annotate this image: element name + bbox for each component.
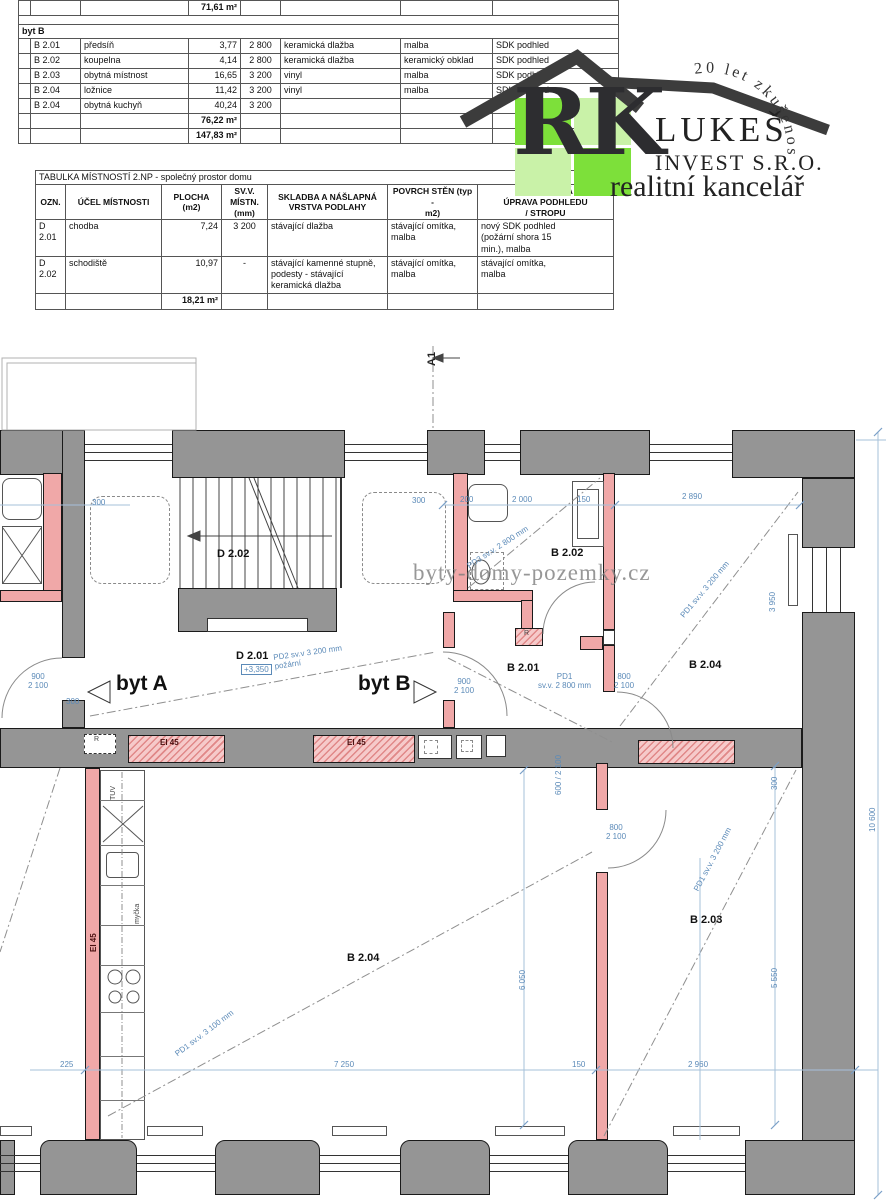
table-cell (81, 129, 189, 144)
plan-label: PD1 sv.v. 3 100 mm (173, 1008, 235, 1058)
table-cell: 3 200 (241, 69, 281, 84)
stairs-icon (180, 478, 336, 588)
plan-label: D 2.02 (217, 548, 249, 561)
plan-label: R (94, 736, 99, 744)
plan-label: byt B (358, 672, 411, 696)
table-header-cell: OZN. (36, 185, 66, 220)
kitchen-oven (106, 852, 139, 878)
wall-bath-a-east (43, 473, 62, 592)
dimension-ticks (81, 428, 882, 1199)
kitchen-counter (100, 770, 145, 1140)
plan-label: 800 2 100 (606, 823, 626, 841)
table-cell: koupelna (81, 54, 189, 69)
table-section-label: byt B (19, 25, 619, 39)
table-cell: vinyl (281, 84, 401, 99)
plan-label: A1 (426, 352, 439, 366)
table-cell (19, 129, 31, 144)
table-cell: D 2.02 (36, 256, 66, 293)
wall-bytb-jamb-n (443, 612, 455, 648)
plan-label: B 2.01 (507, 662, 539, 675)
table-cell (493, 1, 619, 16)
table-cell: 4,14 (189, 54, 241, 69)
table-cell (241, 1, 281, 16)
plan-label: PD1 sv.v. 3 200 mm (678, 559, 731, 619)
wall-bottom-1 (40, 1140, 137, 1195)
table-header-cell: SKLADBA A NÁŠLAPNÁ VRSTVA PODLAHY (268, 185, 388, 220)
table-cell: obytná místnost (81, 69, 189, 84)
table-row: D 2.02schodiště10,97-stávající kamenné s… (36, 256, 614, 293)
table-cell (31, 1, 81, 16)
table-cell: 3,77 (189, 39, 241, 54)
wall-top-4 (520, 430, 650, 475)
table-cell: ložnice (81, 84, 189, 99)
table-row: 71,61 m² (19, 1, 619, 16)
table-cell: 40,24 (189, 99, 241, 114)
plan-label: 150 (572, 1060, 585, 1069)
table-cell: 71,61 m² (189, 1, 241, 16)
plan-label: 300 (66, 697, 79, 706)
plan-label: 150 (577, 495, 590, 504)
terrace-outline (2, 358, 196, 430)
table-cell (241, 129, 281, 144)
logo-name: LUKEŠ (655, 110, 788, 150)
table-cell (19, 84, 31, 99)
wall-hall-west (62, 430, 85, 658)
table-cell (19, 99, 31, 114)
table-cell (222, 293, 268, 309)
table-cell: B 2.02 (31, 54, 81, 69)
table-cell: - (222, 256, 268, 293)
table-cell: 2 800 (241, 54, 281, 69)
table-cell: 3 200 (222, 220, 268, 257)
plan-label: B 2.03 (690, 914, 722, 927)
plan-label: EI 45 (160, 738, 179, 747)
agency-logo: 20 let zkušeností RK LUKEŠ INVEST S.R.O.… (455, 38, 886, 230)
plan-label: 600 / 2 100 (554, 755, 563, 795)
plan-label: 3 950 (768, 592, 777, 612)
table-cell: stávající kamenné stupně, podesty - stáv… (268, 256, 388, 293)
plan-label: 2 000 (512, 495, 532, 504)
wall-bottom-2 (215, 1140, 320, 1195)
table-cell (281, 129, 401, 144)
niche-r-box (84, 734, 116, 754)
wall-bottom-4 (568, 1140, 668, 1195)
table-cell (401, 1, 493, 16)
table-header-cell: PLOCHA (m2) (162, 185, 222, 220)
table-cell (388, 293, 478, 309)
table-cell (19, 1, 31, 16)
table-cell: obytná kuchyň (81, 99, 189, 114)
plan-label: B 2.02 (551, 547, 583, 560)
plan-label: 10 600 (868, 808, 877, 832)
radiator-right (788, 534, 798, 606)
wall-top-2 (172, 430, 345, 478)
table-cell: vinyl (281, 69, 401, 84)
table-cell (19, 54, 31, 69)
wall-right-lower (802, 612, 855, 1195)
table-cell: keramická dlažba (281, 39, 401, 54)
plan-label: 800 2 100 (614, 672, 634, 690)
table-cell: stávající dlažba (268, 220, 388, 257)
table-row: 18,21 m² (36, 293, 614, 309)
appliance-icon-2 (461, 740, 473, 752)
table-cell: schodiště (66, 256, 162, 293)
bathtub-b202 (468, 484, 508, 522)
table-cell (281, 1, 401, 16)
table-cell: 7,24 (162, 220, 222, 257)
plan-label: B 2.04 (689, 659, 721, 672)
table-cell: 3 200 (241, 84, 281, 99)
plan-label: 225 (60, 1060, 73, 1069)
table-cell: B 2.03 (31, 69, 81, 84)
table-cell (19, 69, 31, 84)
radiator-bottom-1 (147, 1126, 203, 1136)
appliance-icon-1 (424, 740, 438, 754)
wardrobe-hall (90, 496, 170, 584)
plan-label: 2 890 (682, 492, 702, 501)
table-cell: 3 200 (241, 99, 281, 114)
wall-bottom-0 (0, 1140, 15, 1195)
table-cell: keramická dlažba (281, 54, 401, 69)
radiator-bottom-3 (495, 1126, 565, 1136)
plan-label: 2 960 (688, 1060, 708, 1069)
table-cell (19, 114, 31, 129)
wall-bottom-3 (400, 1140, 490, 1195)
plan-label: 300 (770, 777, 779, 790)
table-cell: 16,65 (189, 69, 241, 84)
wall-top-3 (427, 430, 485, 475)
table-cell (241, 114, 281, 129)
table-cell: 2 800 (241, 39, 281, 54)
wall-divider-upper (596, 763, 608, 810)
bathtub-byt-a (2, 478, 42, 520)
wall-top-5 (732, 430, 855, 478)
plan-label: 900 2 100 (454, 677, 474, 695)
table-cell (268, 293, 388, 309)
plan-label: EI 45 (89, 933, 98, 952)
plan-label: myčka (134, 904, 142, 924)
plan-label: 200 (460, 495, 473, 504)
table-cell: D 2.01 (36, 220, 66, 257)
niche-b202-east (603, 630, 615, 645)
table-cell: 76,22 m² (189, 114, 241, 129)
plan-label: 300 (412, 496, 425, 505)
wall-right-upper (802, 478, 855, 548)
plan-label: 6 050 (518, 970, 527, 990)
plan-label: +3,350 (241, 664, 272, 675)
plan-label: D 2.01 (236, 650, 268, 663)
table-cell (31, 129, 81, 144)
wall-bath-a-south (0, 590, 62, 602)
niche-appliance-3 (486, 735, 506, 757)
logo-rk-monogram: RK (513, 76, 661, 168)
table-header-cell: SV.V. MÍSTN. (mm) (222, 185, 268, 220)
table-cell: 147,83 m² (189, 129, 241, 144)
table-row: byt B (19, 25, 619, 39)
table-cell: B 2.04 (31, 84, 81, 99)
table-cell (19, 39, 31, 54)
radiator-bottom-4 (673, 1126, 740, 1136)
table-header-cell: ÚČEL MÍSTNOSTI (66, 185, 162, 220)
table-cell (31, 114, 81, 129)
plan-label: B 2.04 (347, 952, 379, 965)
wall-kitchen-west (85, 768, 100, 1140)
table-cell (66, 293, 162, 309)
wall-ei45-3 (638, 740, 735, 764)
plan-label: PD1 sv.v. 2 800 mm (538, 672, 591, 690)
niche-under-stairs (207, 618, 308, 632)
plan-label: 900 2 100 (28, 672, 48, 690)
table-cell: B 2.01 (31, 39, 81, 54)
radiator-bottom-0 (0, 1126, 32, 1136)
table-row (19, 16, 619, 25)
shower-byt-a (2, 526, 42, 584)
table-cell: 18,21 m² (162, 293, 222, 309)
plan-label: PD2 sv.v 3 200 mm požární (273, 643, 344, 671)
plan-label: TUV (110, 786, 118, 800)
table-cell: chodba (66, 220, 162, 257)
plan-label: EI 45 (347, 738, 366, 747)
table-cell: B 2.04 (31, 99, 81, 114)
wall-b202-east-1 (603, 473, 615, 630)
wall-divider-lower (596, 872, 608, 1140)
table-cell (36, 293, 66, 309)
table-cell (281, 99, 401, 114)
wall-b202-south-3 (580, 636, 603, 650)
plan-label: PD1 sv.v. 3 200 mm (692, 826, 733, 893)
table-cell: stávající omítka, malba (388, 256, 478, 293)
wall-bytb-jamb-s (443, 700, 455, 728)
plan-label: R (524, 630, 529, 638)
table-cell: předsíň (81, 39, 189, 54)
radiator-bottom-2 (332, 1126, 387, 1136)
plan-label: 300 (92, 498, 105, 507)
watermark: byty-domy-pozemky.cz (413, 560, 651, 586)
table-cell (81, 1, 189, 16)
table-cell: 11,42 (189, 84, 241, 99)
wall-bottom-corner (745, 1140, 855, 1195)
table-cell (81, 114, 189, 129)
logo-tagline: realitní kancelář (610, 170, 804, 204)
table-cell: 10,97 (162, 256, 222, 293)
table-cell: stávající omítka, malba (478, 256, 614, 293)
plan-label: 7 250 (334, 1060, 354, 1069)
table-cell (478, 293, 614, 309)
plan-label: 5 550 (770, 968, 779, 988)
table-cell (281, 114, 401, 129)
plan-label: byt A (116, 672, 168, 696)
